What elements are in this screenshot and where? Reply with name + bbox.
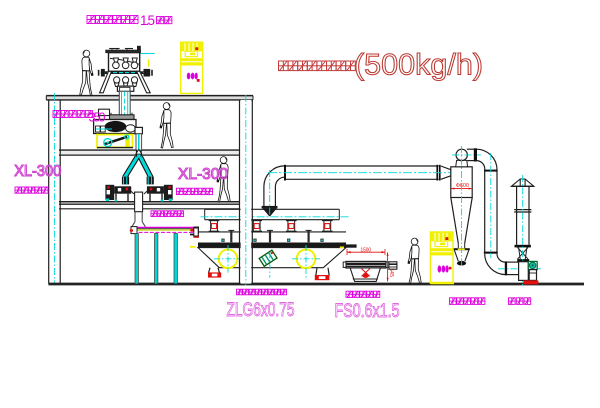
svg-text:350: 350 (89, 111, 106, 125)
svg-text:1.5: 1.5 (140, 13, 155, 28)
svg-text:1500: 1500 (361, 247, 372, 253)
svg-text:XL-300: XL-300 (178, 166, 228, 183)
svg-text:FS0.6x1.5: FS0.6x1.5 (335, 300, 400, 322)
svg-text:ZLG6x0.75: ZLG6x0.75 (227, 299, 295, 321)
svg-text:(500kg/h): (500kg/h) (354, 49, 483, 82)
svg-text:XL-300: XL-300 (14, 163, 61, 180)
